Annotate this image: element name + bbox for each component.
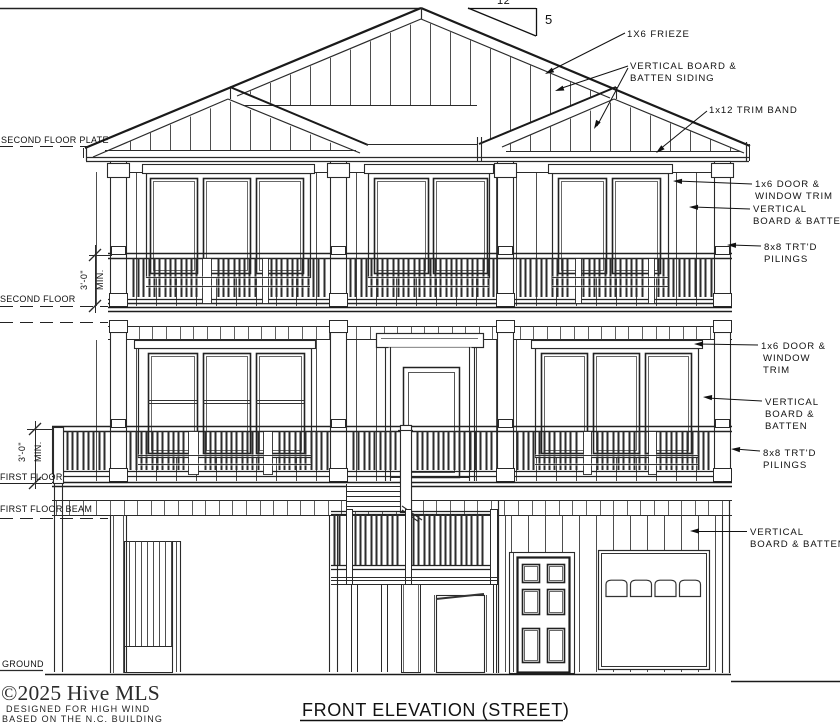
svg-text:5: 5 bbox=[545, 12, 553, 27]
svg-text:BOARD & BATTEN: BOARD & BATTEN bbox=[750, 539, 840, 550]
svg-text:WINDOW TRIM: WINDOW TRIM bbox=[755, 191, 833, 202]
svg-text:PILINGS: PILINGS bbox=[763, 460, 807, 471]
svg-text:VERTICAL BOARD &: VERTICAL BOARD & bbox=[630, 61, 737, 72]
svg-text:VERTICAL: VERTICAL bbox=[753, 204, 807, 215]
svg-text:1x12 TRIM BAND: 1x12 TRIM BAND bbox=[709, 105, 798, 116]
svg-text:FRONT ELEVATION (STREET): FRONT ELEVATION (STREET) bbox=[302, 700, 569, 720]
svg-text:SECOND FLOOR PLATE: SECOND FLOOR PLATE bbox=[1, 135, 109, 145]
svg-text:PILINGS: PILINGS bbox=[764, 254, 808, 265]
svg-text:GROUND: GROUND bbox=[2, 659, 44, 669]
svg-text:DESIGNED FOR HIGH WIND: DESIGNED FOR HIGH WIND bbox=[6, 704, 150, 714]
svg-text:8x8 TRT'D: 8x8 TRT'D bbox=[764, 242, 817, 253]
svg-text:12: 12 bbox=[497, 0, 510, 7]
svg-text:3'-0": 3'-0" bbox=[79, 270, 89, 290]
svg-text:8x8 TRT'D: 8x8 TRT'D bbox=[763, 448, 816, 459]
svg-text:BOARD & BATTEN: BOARD & BATTEN bbox=[753, 216, 840, 227]
svg-text:WINDOW: WINDOW bbox=[763, 353, 811, 364]
svg-text:SECOND FLOOR: SECOND FLOOR bbox=[0, 294, 76, 304]
svg-text:BOARD &: BOARD & bbox=[765, 409, 814, 420]
svg-text:FIRST FLOOR BEAM: FIRST FLOOR BEAM bbox=[0, 504, 92, 514]
svg-text:1X6 FRIEZE: 1X6 FRIEZE bbox=[627, 29, 690, 40]
svg-text:VERTICAL: VERTICAL bbox=[765, 397, 819, 408]
svg-text:MIN.: MIN. bbox=[95, 269, 105, 290]
svg-text:BASED ON THE N.C. BUILDING: BASED ON THE N.C. BUILDING bbox=[2, 714, 163, 723]
svg-text:1x6 DOOR &: 1x6 DOOR & bbox=[755, 179, 820, 190]
svg-text:VERTICAL: VERTICAL bbox=[750, 527, 804, 538]
svg-text:TRIM: TRIM bbox=[763, 365, 790, 376]
svg-text:BATTEN SIDING: BATTEN SIDING bbox=[630, 73, 715, 84]
svg-text:FIRST FLOOR: FIRST FLOOR bbox=[0, 472, 63, 482]
svg-text:©2025 Hive MLS: ©2025 Hive MLS bbox=[1, 681, 160, 705]
svg-text:BATTEN: BATTEN bbox=[765, 421, 808, 432]
svg-text:3'-0": 3'-0" bbox=[17, 442, 27, 462]
svg-text:MIN.: MIN. bbox=[33, 441, 43, 462]
svg-text:1x6 DOOR &: 1x6 DOOR & bbox=[761, 341, 826, 352]
